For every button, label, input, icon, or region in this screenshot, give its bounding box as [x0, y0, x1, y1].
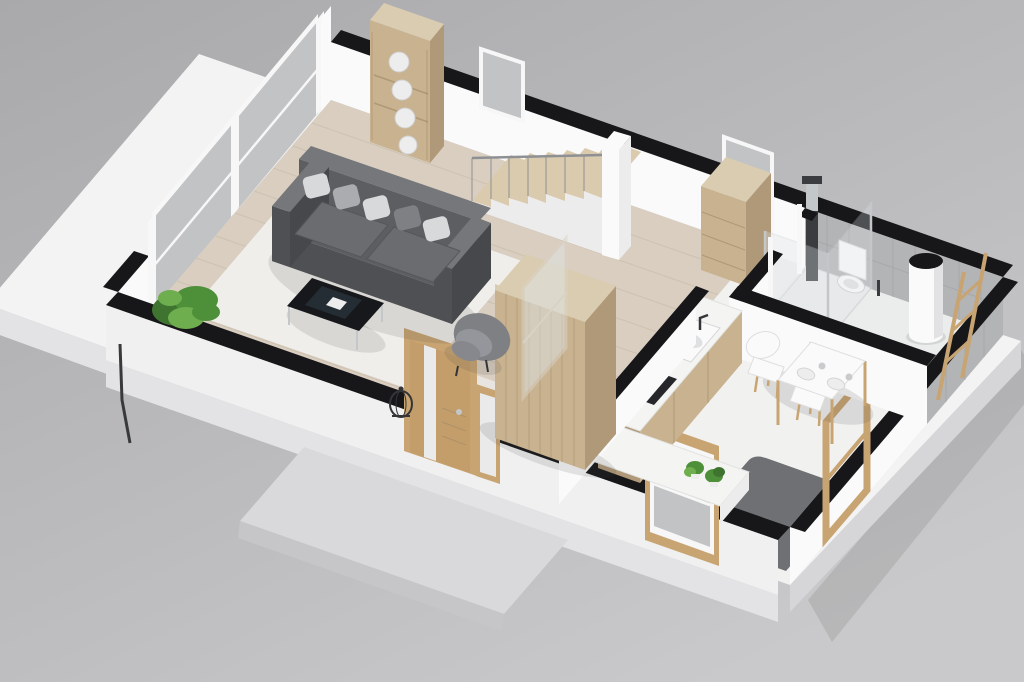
plant-pot-2 — [710, 482, 718, 487]
window-post-b — [231, 113, 239, 217]
cup-2 — [846, 374, 853, 381]
left-wall-corner-post — [321, 6, 331, 112]
shower-head — [802, 176, 822, 184]
floorplan-render — [0, 0, 1024, 682]
water-heater-cylinder — [906, 253, 946, 345]
bookshelf-side — [430, 24, 444, 163]
door-handle — [456, 409, 462, 415]
cylinder-shade — [934, 261, 943, 339]
front-door-glass-strip — [424, 345, 436, 461]
bookshelf — [370, 3, 444, 163]
newel-front — [602, 145, 619, 260]
plant-pot-1 — [691, 474, 699, 479]
newel-side — [619, 136, 631, 260]
cylinder-top — [909, 253, 943, 269]
window-post-a — [148, 212, 156, 316]
decor-plate-1 — [389, 52, 409, 72]
decor-plate-2 — [392, 80, 412, 100]
shower-chrome-panel — [806, 181, 818, 211]
toilet-brush — [877, 280, 880, 296]
floorplan-svg — [0, 0, 1024, 682]
sofa-arm-left-front — [272, 206, 290, 267]
decor-plate-3 — [395, 108, 415, 128]
newel-column — [602, 131, 631, 260]
bath-door-jamb-2 — [797, 204, 802, 274]
bath-door-jamb-1 — [768, 237, 773, 307]
cup-1 — [819, 363, 826, 370]
decor-plate-4 — [399, 136, 417, 154]
back-window-frame — [481, 49, 523, 121]
